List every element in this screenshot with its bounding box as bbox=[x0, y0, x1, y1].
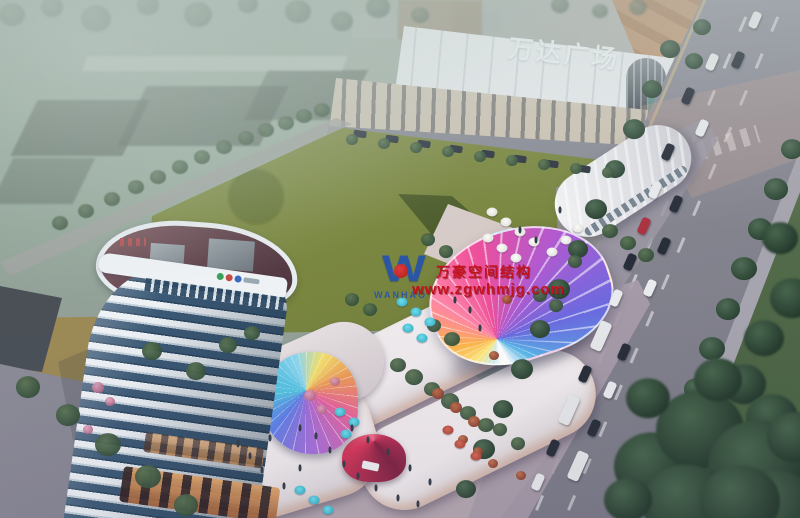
person bbox=[269, 434, 272, 441]
umbrella-white bbox=[573, 224, 584, 233]
tree bbox=[186, 362, 206, 380]
watermark-logo-red-dot bbox=[394, 264, 408, 278]
watermark-brand-text: 万豪空间结构 bbox=[436, 262, 532, 282]
tree bbox=[468, 416, 480, 427]
tree bbox=[410, 142, 422, 153]
person bbox=[409, 464, 412, 471]
person bbox=[299, 424, 302, 431]
tree bbox=[330, 377, 340, 386]
umbrella-teal bbox=[425, 318, 436, 327]
tree bbox=[764, 178, 788, 200]
tree bbox=[345, 293, 359, 306]
tree bbox=[442, 146, 454, 157]
tree bbox=[450, 402, 462, 413]
tree bbox=[92, 382, 104, 393]
tower-logo-green-dot bbox=[216, 273, 224, 281]
tree bbox=[660, 40, 680, 58]
tree bbox=[626, 378, 670, 418]
tree bbox=[493, 400, 513, 418]
umbrella-white bbox=[561, 236, 572, 245]
tree bbox=[304, 390, 316, 401]
tree bbox=[604, 478, 652, 518]
tree bbox=[405, 369, 423, 385]
umbrella-white bbox=[487, 208, 498, 217]
tree bbox=[685, 53, 703, 69]
person bbox=[299, 464, 302, 471]
tree bbox=[693, 19, 711, 35]
tree bbox=[493, 423, 507, 436]
tree bbox=[602, 167, 614, 178]
tree bbox=[317, 405, 327, 414]
person bbox=[387, 448, 390, 455]
person bbox=[375, 484, 378, 491]
person bbox=[283, 482, 286, 489]
tree bbox=[506, 155, 518, 166]
tree bbox=[174, 494, 198, 516]
tower-logo-text-bar bbox=[243, 277, 260, 284]
tree bbox=[56, 404, 80, 426]
umbrella-teal bbox=[335, 408, 346, 417]
red-drum-feature bbox=[342, 434, 406, 482]
tree bbox=[81, 5, 111, 32]
tree bbox=[456, 480, 476, 498]
tree bbox=[516, 471, 526, 480]
tree bbox=[378, 138, 390, 149]
tree bbox=[511, 359, 533, 379]
person bbox=[367, 436, 370, 443]
tree bbox=[716, 298, 740, 320]
aerial-rendering-canvas: 万达广场 bbox=[0, 0, 800, 518]
person bbox=[315, 432, 318, 439]
umbrella-teal bbox=[323, 506, 334, 515]
person bbox=[479, 324, 482, 331]
tower-logo-blue-dot bbox=[234, 275, 242, 283]
tower-logo bbox=[216, 273, 260, 286]
person bbox=[329, 446, 332, 453]
person bbox=[519, 226, 522, 233]
distant-low-building bbox=[82, 56, 347, 71]
umbrella-teal bbox=[403, 324, 414, 333]
tree bbox=[411, 7, 429, 23]
person bbox=[559, 206, 562, 213]
tree bbox=[694, 358, 742, 401]
watermark-url-text: www.zgwhmjg.com bbox=[412, 281, 565, 298]
tree bbox=[489, 351, 499, 360]
umbrella-teal bbox=[309, 496, 320, 505]
tree bbox=[511, 437, 525, 450]
umbrella-white bbox=[483, 234, 494, 243]
person bbox=[429, 478, 432, 485]
tree bbox=[83, 425, 93, 434]
tree bbox=[366, 0, 390, 18]
tree bbox=[538, 159, 550, 170]
umbrella-white bbox=[501, 218, 512, 227]
watermark: W WANHAO 万豪空间结构 www.zgwhmjg.com bbox=[368, 248, 668, 312]
umbrella-red bbox=[455, 440, 466, 449]
person bbox=[535, 236, 538, 243]
tree bbox=[642, 80, 662, 98]
tree bbox=[432, 388, 444, 399]
umbrella-teal bbox=[417, 334, 428, 343]
rooftop-vents bbox=[120, 238, 146, 246]
tree bbox=[474, 151, 486, 162]
tower-logo-red-dot bbox=[225, 274, 233, 282]
display-car bbox=[361, 460, 379, 471]
tree bbox=[585, 199, 607, 219]
tree bbox=[421, 233, 435, 246]
tree bbox=[105, 397, 115, 406]
person bbox=[397, 494, 400, 501]
umbrella-teal bbox=[341, 430, 352, 439]
tree bbox=[331, 11, 353, 31]
rooftop-plant-box bbox=[207, 238, 255, 271]
tree bbox=[142, 342, 162, 360]
person bbox=[237, 440, 240, 447]
person bbox=[261, 466, 264, 473]
tree bbox=[346, 134, 358, 145]
umbrella-teal bbox=[295, 486, 306, 495]
tree bbox=[744, 320, 784, 356]
tree bbox=[530, 320, 550, 338]
tree bbox=[488, 459, 498, 468]
tree bbox=[219, 337, 237, 353]
umbrella-red bbox=[443, 426, 454, 435]
tree bbox=[623, 119, 645, 139]
person bbox=[343, 460, 346, 467]
person bbox=[249, 452, 252, 459]
tree bbox=[16, 376, 40, 398]
umbrella-red bbox=[471, 452, 482, 461]
person bbox=[357, 472, 360, 479]
tree bbox=[184, 2, 212, 27]
person bbox=[417, 500, 420, 507]
tree bbox=[781, 139, 800, 159]
tree bbox=[570, 163, 582, 174]
person bbox=[351, 424, 354, 431]
